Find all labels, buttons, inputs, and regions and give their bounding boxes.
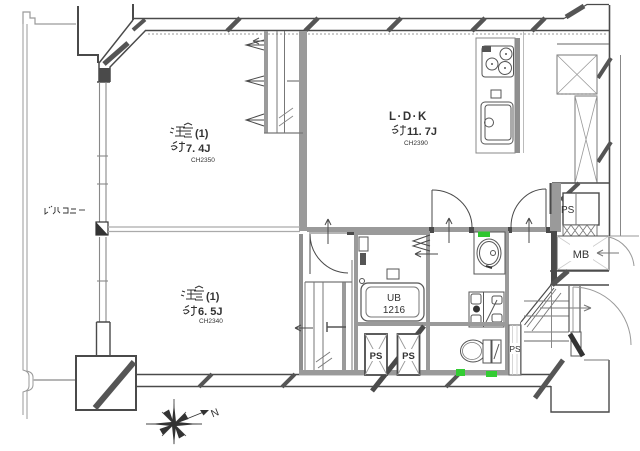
svg-text:MB: MB	[573, 249, 590, 261]
svg-text:PS: PS	[370, 351, 383, 362]
svg-text:(1): (1)	[206, 291, 220, 303]
svg-text:7. 4J: 7. 4J	[186, 143, 210, 155]
svg-text:1216: 1216	[383, 305, 406, 316]
svg-text:PS: PS	[561, 205, 575, 216]
svg-text:L·D·K: L·D·K	[389, 111, 428, 123]
svg-text:(1): (1)	[195, 128, 209, 140]
svg-text:PS: PS	[509, 344, 521, 354]
svg-text:PS: PS	[402, 351, 415, 362]
svg-text:11. 7J: 11. 7J	[407, 126, 437, 138]
svg-text:6. 5J: 6. 5J	[198, 306, 222, 318]
svg-text:CH2350: CH2350	[191, 157, 215, 164]
svg-text:UB: UB	[387, 293, 401, 304]
svg-text:CH2340: CH2340	[199, 318, 223, 325]
svg-text:CH2390: CH2390	[404, 140, 428, 147]
